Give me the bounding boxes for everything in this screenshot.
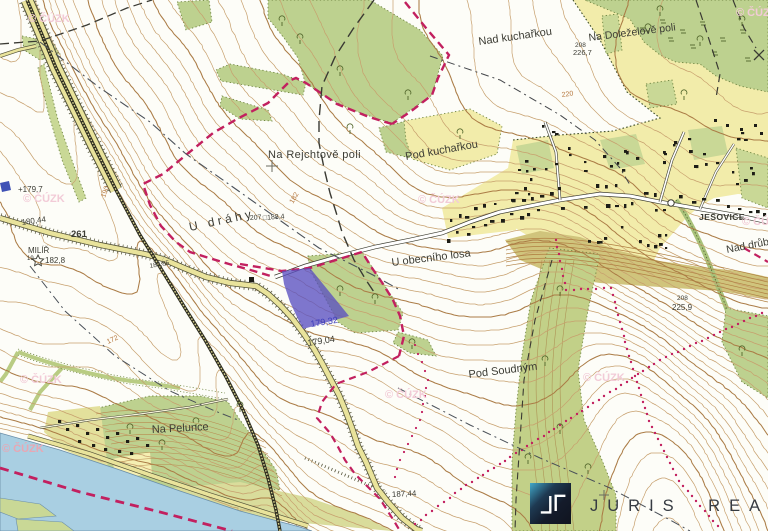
svg-text:226,7: 226,7: [573, 48, 592, 57]
svg-text:182,8: 182,8: [45, 256, 66, 265]
svg-text:Na Rejchtově poli: Na Rejchtově poli: [268, 149, 361, 161]
svg-text:261: 261: [71, 229, 88, 240]
svg-text:207: 207: [250, 214, 262, 222]
svg-text:208: 208: [677, 295, 688, 302]
svg-text:© ČÚZK: © ČÚZK: [736, 6, 768, 19]
svg-text:© ČÚZK: © ČÚZK: [742, 215, 768, 228]
svg-text:© ČÚZK: © ČÚZK: [20, 373, 62, 386]
svg-text:MILÍŘ: MILÍŘ: [28, 246, 50, 255]
svg-text:JEŠOVICE: JEŠOVICE: [699, 211, 745, 222]
svg-text:187,44: 187,44: [392, 489, 417, 499]
svg-text:© ČÚZK: © ČÚZK: [583, 371, 625, 384]
svg-text:© ČÚZK: © ČÚZK: [385, 388, 427, 401]
svg-text:225,9: 225,9: [672, 303, 693, 312]
svg-text:© ČÚZK: © ČÚZK: [23, 192, 65, 205]
svg-text:© ČÚZK: © ČÚZK: [2, 442, 44, 455]
svg-text:JURIS REAL: JURIS REAL: [590, 497, 768, 515]
svg-text:© ČÚZK: © ČÚZK: [28, 12, 70, 25]
svg-text:© ČÚZK: © ČÚZK: [418, 193, 460, 206]
